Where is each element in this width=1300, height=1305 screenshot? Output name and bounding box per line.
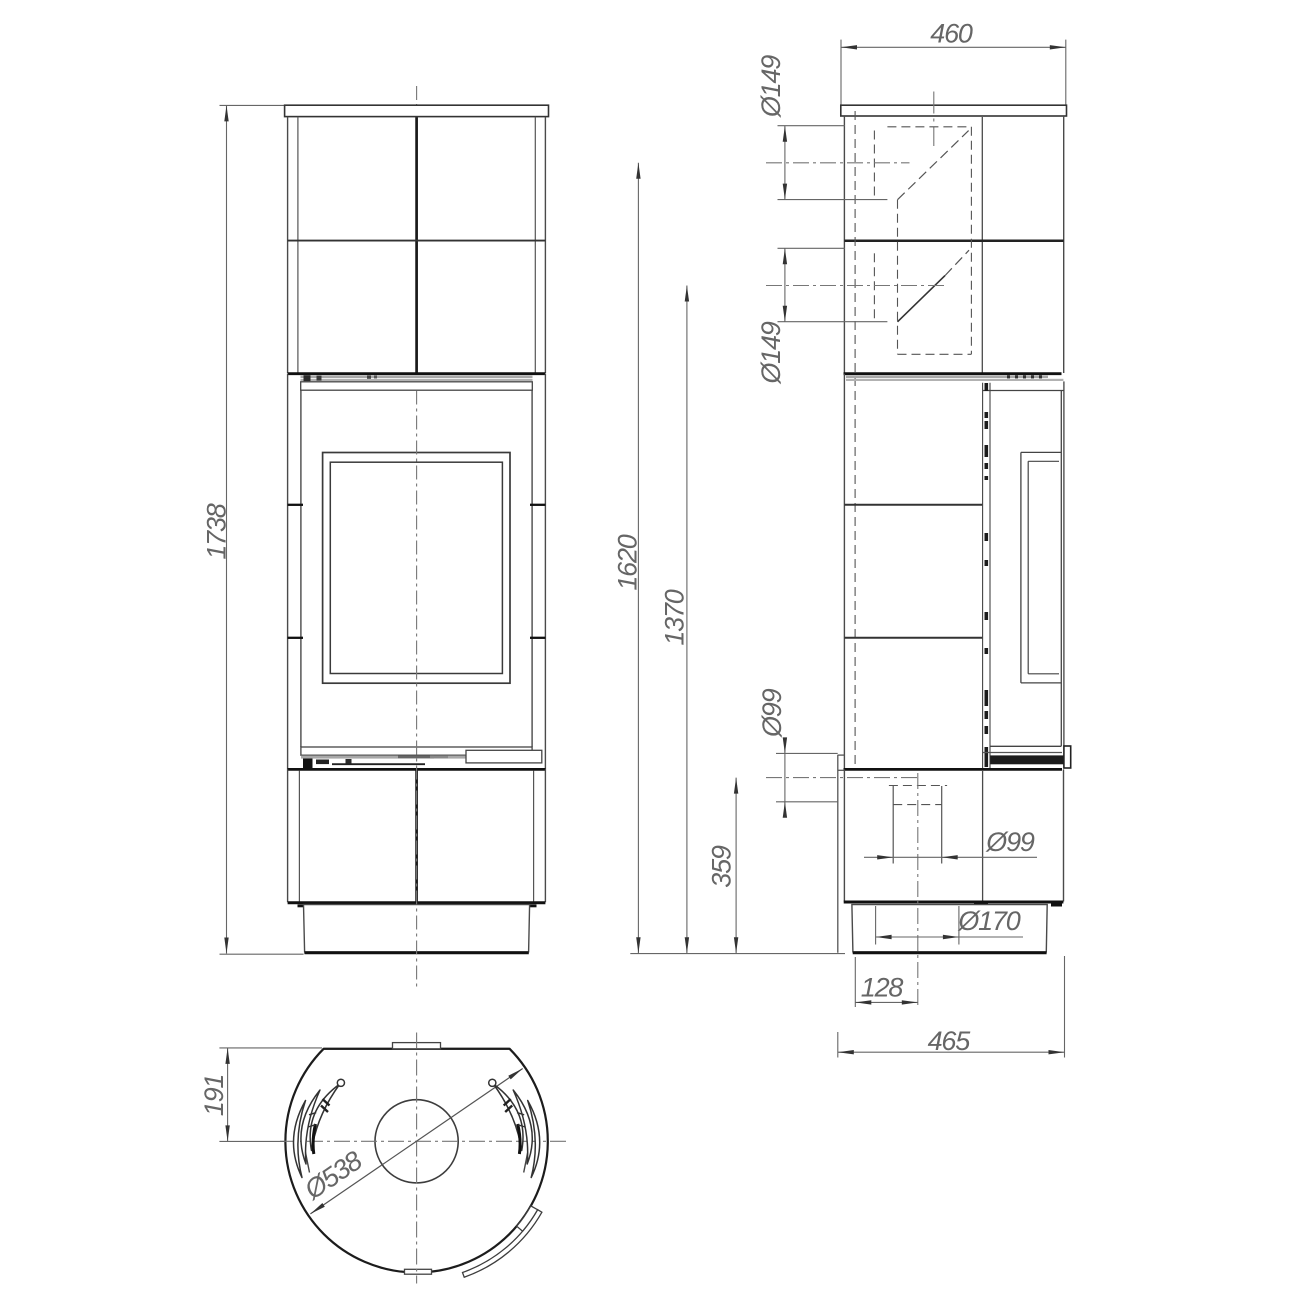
svg-text:1620: 1620 (612, 534, 642, 590)
svg-text:1738: 1738 (202, 503, 232, 559)
svg-text:Ø99: Ø99 (985, 827, 1035, 857)
svg-text:1370: 1370 (659, 589, 689, 645)
svg-text:Ø149: Ø149 (756, 55, 786, 118)
svg-text:359: 359 (706, 845, 736, 888)
svg-text:191: 191 (199, 1075, 229, 1116)
svg-text:465: 465 (928, 1026, 972, 1056)
svg-text:Ø99: Ø99 (757, 688, 787, 738)
svg-text:460: 460 (930, 19, 973, 49)
svg-text:128: 128 (861, 973, 904, 1003)
svg-text:Ø149: Ø149 (756, 321, 786, 384)
svg-text:Ø170: Ø170 (957, 906, 1020, 936)
